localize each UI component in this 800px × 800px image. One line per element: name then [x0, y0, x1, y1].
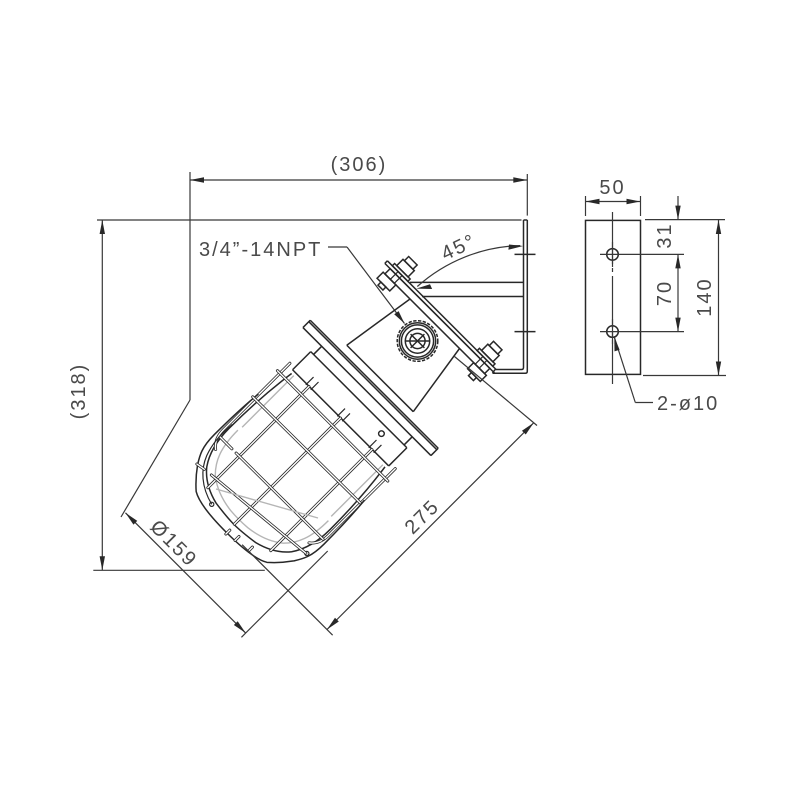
- svg-text:31: 31: [654, 222, 676, 248]
- svg-text:3/4”-14NPT: 3/4”-14NPT: [199, 239, 322, 261]
- svg-text:(306): (306): [331, 154, 388, 176]
- svg-text:2-ø10: 2-ø10: [657, 393, 719, 415]
- svg-text:140: 140: [694, 277, 716, 316]
- svg-text:(318): (318): [68, 363, 90, 420]
- svg-text:50: 50: [599, 177, 625, 199]
- svg-text:70: 70: [654, 280, 676, 306]
